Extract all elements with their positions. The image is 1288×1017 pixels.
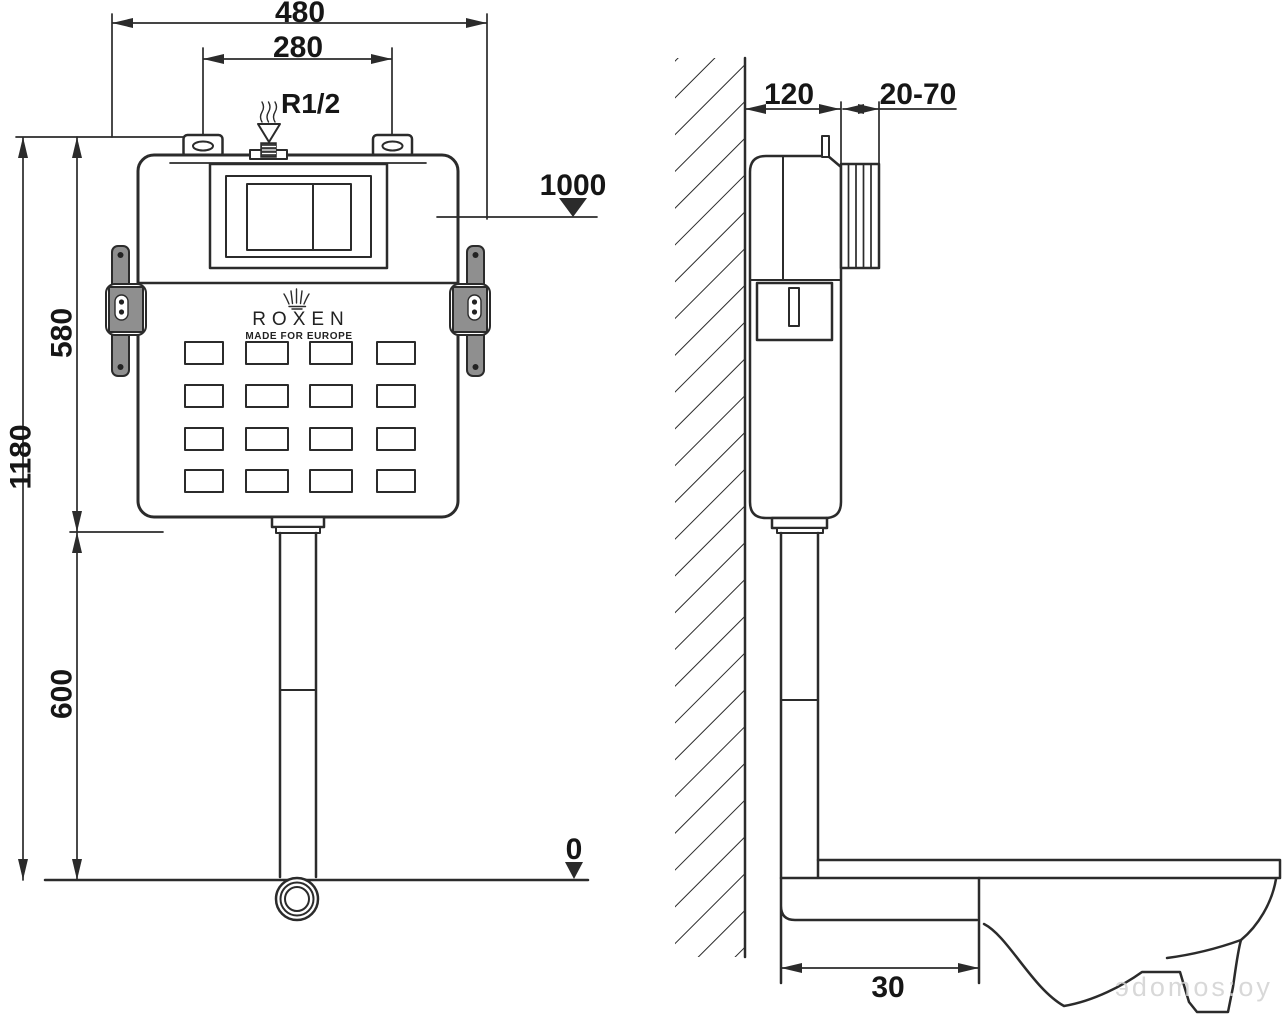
dim-480-label: 480 [275, 0, 325, 29]
dim-120-label: 120 [764, 78, 814, 111]
flush-pipe-side [772, 518, 827, 877]
brand-tagline: MADE FOR EUROPE [245, 331, 352, 342]
dim-faceplate-range: 20-70 [843, 78, 956, 164]
front-view: 480 280 1180 580 600 [5, 0, 607, 920]
fin-section [841, 164, 879, 268]
dim-mount-spacing: 280 [203, 31, 392, 141]
dim-30-label: 30 [871, 971, 904, 1004]
dim-supply-height: 1000 [437, 169, 606, 217]
dim-1000-label: 1000 [540, 169, 607, 202]
inlet-pin [822, 136, 829, 157]
technical-drawing-concealed-cistern: 480 280 1180 580 600 [0, 0, 1288, 1017]
watermark: эdomos:oy [1115, 972, 1273, 1002]
frame-rail [781, 860, 1280, 878]
inlet-assembly: R1/2 [250, 88, 340, 159]
service-slot [789, 288, 799, 326]
brand-name: ROXEN [252, 309, 350, 330]
inlet-thread-label: R1/2 [281, 88, 340, 119]
dim-600-label: 600 [46, 669, 79, 719]
bracket-right-slot [468, 295, 481, 320]
access-panel [210, 164, 387, 268]
dim-2070-label: 20-70 [880, 78, 957, 111]
side-view: 120 20-70 [675, 58, 1280, 1012]
dim-580-label: 580 [46, 308, 79, 358]
cistern-body-side [750, 136, 879, 518]
flow-squiggle-icon [261, 102, 277, 122]
flush-pipe-front [272, 517, 324, 920]
drain-elbow-rings [276, 878, 318, 920]
bracket-left-slot [115, 295, 128, 320]
drawing-svg: 480 280 1180 580 600 [0, 0, 1288, 1017]
dim-outlet-offset: 30 [781, 963, 979, 1004]
wall-hatching [675, 58, 745, 957]
dim-1180-label: 1180 [5, 424, 38, 489]
zero-level-marker: 0 [565, 833, 583, 879]
dim-280-label: 280 [273, 31, 323, 64]
funnel-arrow-icon [258, 124, 280, 142]
zero-label: 0 [566, 833, 583, 866]
flush-panel [247, 184, 351, 250]
